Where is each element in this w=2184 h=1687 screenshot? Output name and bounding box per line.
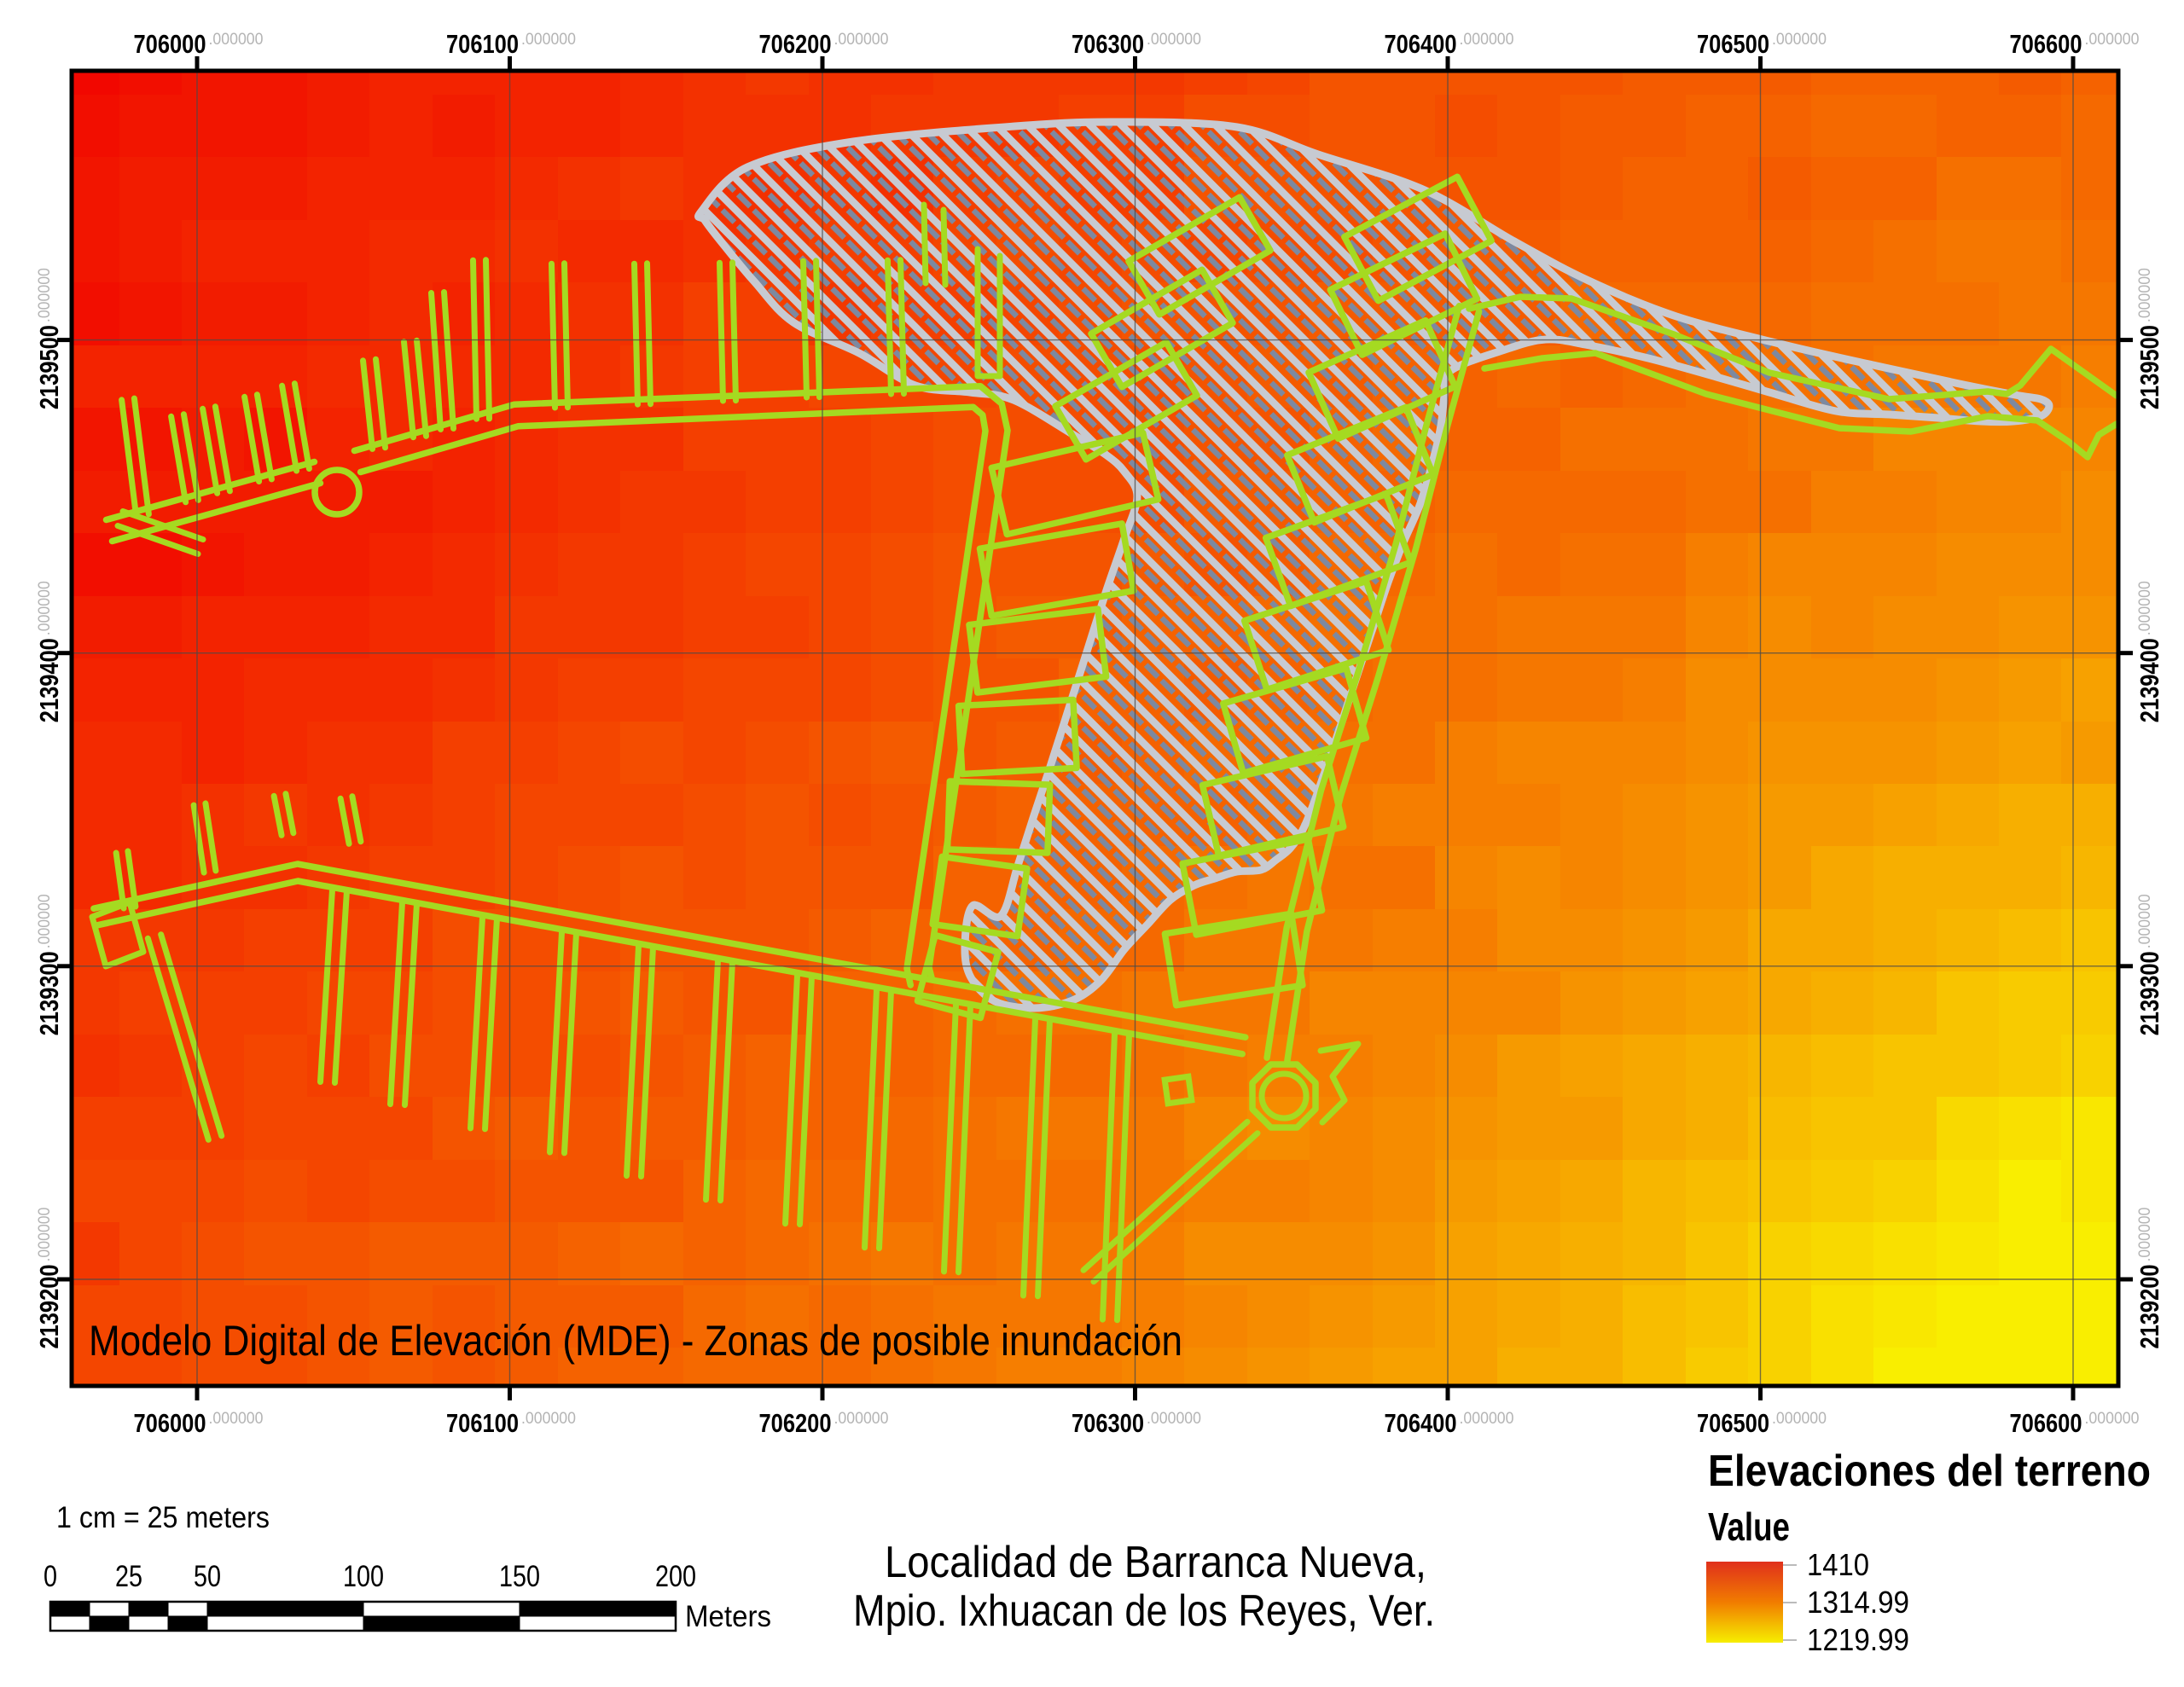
svg-text:1 cm = 25 meters: 1 cm = 25 meters — [56, 1501, 270, 1534]
svg-text:.000000: .000000 — [2136, 268, 2154, 322]
svg-text:706600: 706600 — [2010, 29, 2082, 59]
svg-text:0: 0 — [44, 1560, 57, 1593]
svg-text:Localidad de Barranca Nueva,: Localidad de Barranca Nueva, — [885, 1538, 1426, 1587]
svg-text:.000000: .000000 — [1460, 1410, 1514, 1428]
svg-text:2139500: 2139500 — [34, 325, 64, 409]
svg-text:1219.99: 1219.99 — [1807, 1622, 1909, 1657]
svg-text:.000000: .000000 — [209, 31, 264, 49]
svg-text:1410: 1410 — [1807, 1547, 1869, 1582]
svg-text:706300: 706300 — [1072, 1408, 1144, 1438]
svg-text:.000000: .000000 — [36, 581, 54, 635]
svg-text:706600: 706600 — [2010, 1408, 2082, 1438]
svg-text:.000000: .000000 — [834, 31, 889, 49]
svg-text:.000000: .000000 — [36, 1208, 54, 1262]
svg-text:706500: 706500 — [1697, 29, 1769, 59]
svg-text:Value: Value — [1708, 1504, 1790, 1549]
svg-text:2139400: 2139400 — [34, 638, 64, 722]
svg-text:706500: 706500 — [1697, 1408, 1769, 1438]
svg-text:.000000: .000000 — [834, 1410, 889, 1428]
svg-text:706100: 706100 — [446, 1408, 519, 1438]
svg-text:.000000: .000000 — [1772, 31, 1827, 49]
svg-text:.000000: .000000 — [521, 31, 576, 49]
svg-text:.000000: .000000 — [36, 894, 54, 948]
svg-text:706400: 706400 — [1385, 1408, 1457, 1438]
svg-text:50: 50 — [194, 1560, 221, 1593]
svg-text:2139300: 2139300 — [34, 951, 64, 1035]
svg-text:100: 100 — [343, 1560, 384, 1593]
svg-text:706200: 706200 — [759, 29, 832, 59]
svg-text:Elevaciones del terreno: Elevaciones del terreno — [1708, 1446, 2151, 1496]
svg-text:.000000: .000000 — [209, 1410, 264, 1428]
svg-text:706200: 706200 — [759, 1408, 832, 1438]
svg-text:25: 25 — [115, 1560, 142, 1593]
svg-text:.000000: .000000 — [2085, 31, 2140, 49]
svg-text:.000000: .000000 — [2136, 1208, 2154, 1262]
svg-text:706000: 706000 — [134, 29, 206, 59]
svg-text:2139400: 2139400 — [2135, 638, 2164, 722]
svg-text:706000: 706000 — [134, 1408, 206, 1438]
svg-text:1314.99: 1314.99 — [1807, 1585, 1909, 1620]
svg-text:.000000: .000000 — [1772, 1410, 1827, 1428]
svg-text:706400: 706400 — [1385, 29, 1457, 59]
svg-text:Mpio. Ixhuacan de los Reyes, V: Mpio. Ixhuacan de los Reyes, Ver. — [853, 1586, 1435, 1636]
svg-text:.000000: .000000 — [2085, 1410, 2140, 1428]
svg-text:706100: 706100 — [446, 29, 519, 59]
svg-text:150: 150 — [499, 1560, 540, 1593]
svg-text:2139200: 2139200 — [2135, 1265, 2164, 1349]
svg-text:Meters: Meters — [685, 1600, 771, 1633]
svg-text:.000000: .000000 — [2136, 581, 2154, 635]
svg-text:200: 200 — [655, 1560, 696, 1593]
svg-text:.000000: .000000 — [1147, 31, 1201, 49]
svg-text:Modelo Digital de Elevación (M: Modelo Digital de Elevación (MDE) - Zona… — [89, 1317, 1182, 1365]
svg-text:.000000: .000000 — [1147, 1410, 1201, 1428]
svg-text:2139500: 2139500 — [2135, 325, 2164, 409]
svg-text:2139200: 2139200 — [34, 1265, 64, 1349]
svg-text:.000000: .000000 — [521, 1410, 576, 1428]
svg-text:.000000: .000000 — [36, 268, 54, 322]
svg-text:2139300: 2139300 — [2135, 951, 2164, 1035]
svg-text:.000000: .000000 — [2136, 894, 2154, 948]
svg-text:.000000: .000000 — [1460, 31, 1514, 49]
svg-text:706300: 706300 — [1072, 29, 1144, 59]
